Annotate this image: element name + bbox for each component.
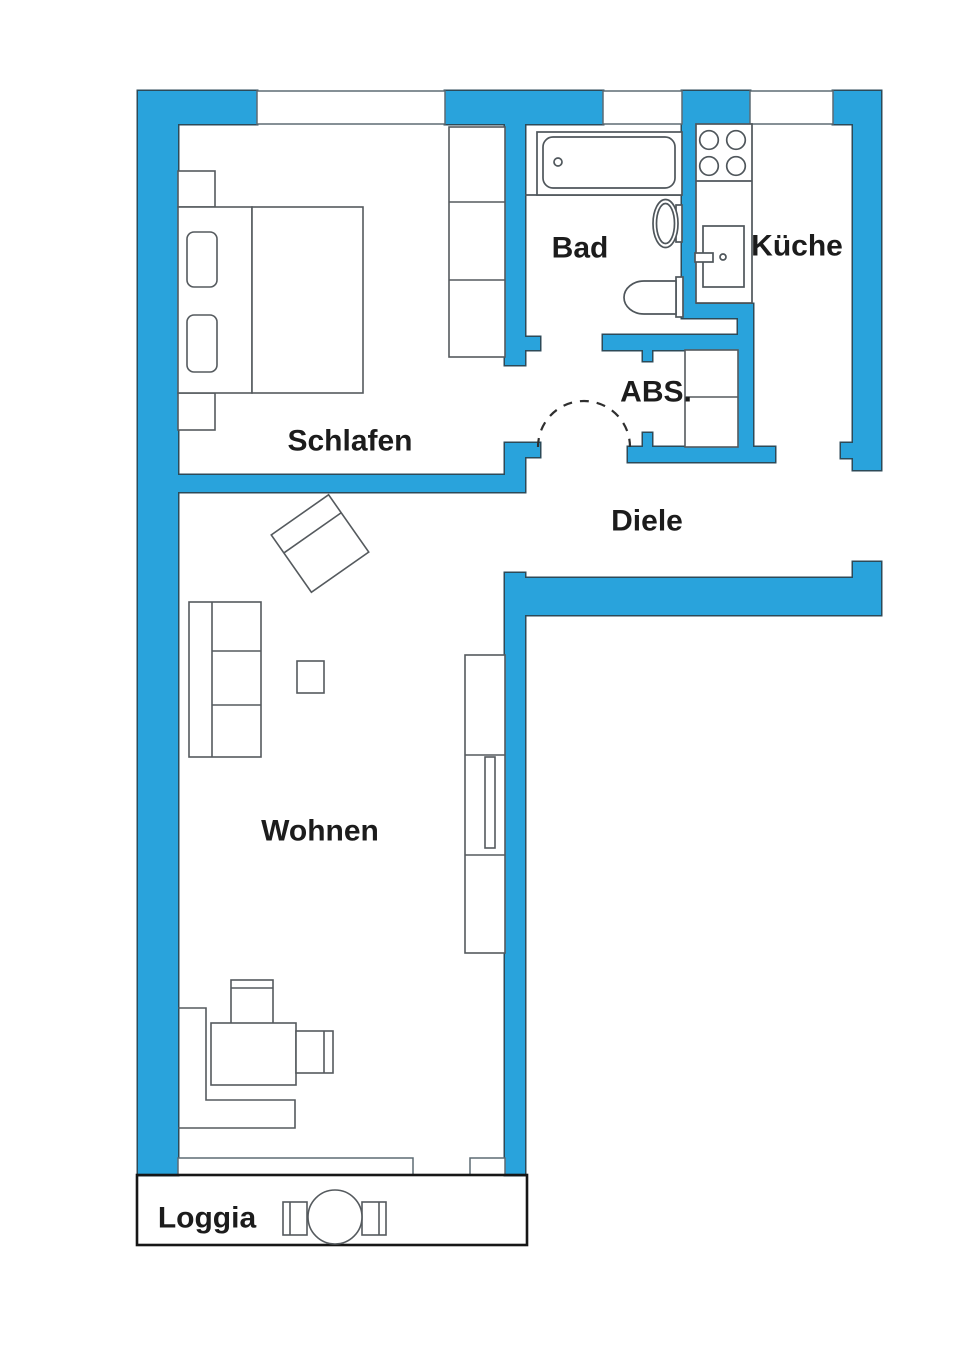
pillow-top [187,232,217,287]
desk-side-unit [296,1031,333,1073]
burner-icon-3 [700,157,719,176]
loggia-window-left [178,1158,413,1175]
burner-icon-2 [727,131,746,150]
label-bad: Bad [552,232,609,265]
burner-icon-1 [700,131,719,150]
wohnen-furniture [178,495,505,1128]
label-schlafen: Schlafen [287,425,412,458]
loggia-window-right [470,1158,505,1175]
sink-drain-icon [720,254,726,260]
pillow-bottom [187,315,217,372]
window-bad [603,91,682,124]
schlafen-furniture [178,127,505,430]
wall-unit-tv [485,757,495,848]
toilet-bowl [624,281,676,314]
kueche-fixtures [695,124,752,303]
label-abstellraum: ABS. [620,376,692,409]
label-loggia: Loggia [158,1202,257,1235]
sofa [189,602,261,757]
double-bed [252,207,363,393]
wardrobe-schlafen [449,127,505,357]
loggia-table [308,1190,362,1244]
desk-chair [231,980,273,1024]
floor-plan-canvas: Schlafen Bad Küche ABS. Diele Wohnen Log… [0,0,960,1347]
washbasin-bowl [657,204,675,244]
side-table [297,661,324,693]
floor-plan-page: Schlafen Bad Küche ABS. Diele Wohnen Log… [0,0,960,1347]
bathtub-drain-icon [554,158,562,166]
label-diele: Diele [611,505,683,538]
abs-shelf [685,350,738,447]
toilet-tank [676,277,683,317]
nightstand-bottom [178,393,215,430]
armchair-seat [271,495,368,592]
burner-icon-4 [727,157,746,176]
loggia-chair-left [283,1202,307,1235]
label-wohnen: Wohnen [261,815,379,848]
loggia-chair-right [362,1202,386,1235]
nightstand-top [178,171,215,207]
window-schlafen [257,91,445,124]
label-kueche: Küche [751,230,843,263]
bad-fixtures [525,132,683,317]
desk [211,1023,296,1085]
armchair [271,495,368,592]
window-kueche [750,91,833,124]
abs-fixtures [685,350,738,447]
door-swing-arc [538,401,630,447]
kitchen-faucet [695,253,713,262]
